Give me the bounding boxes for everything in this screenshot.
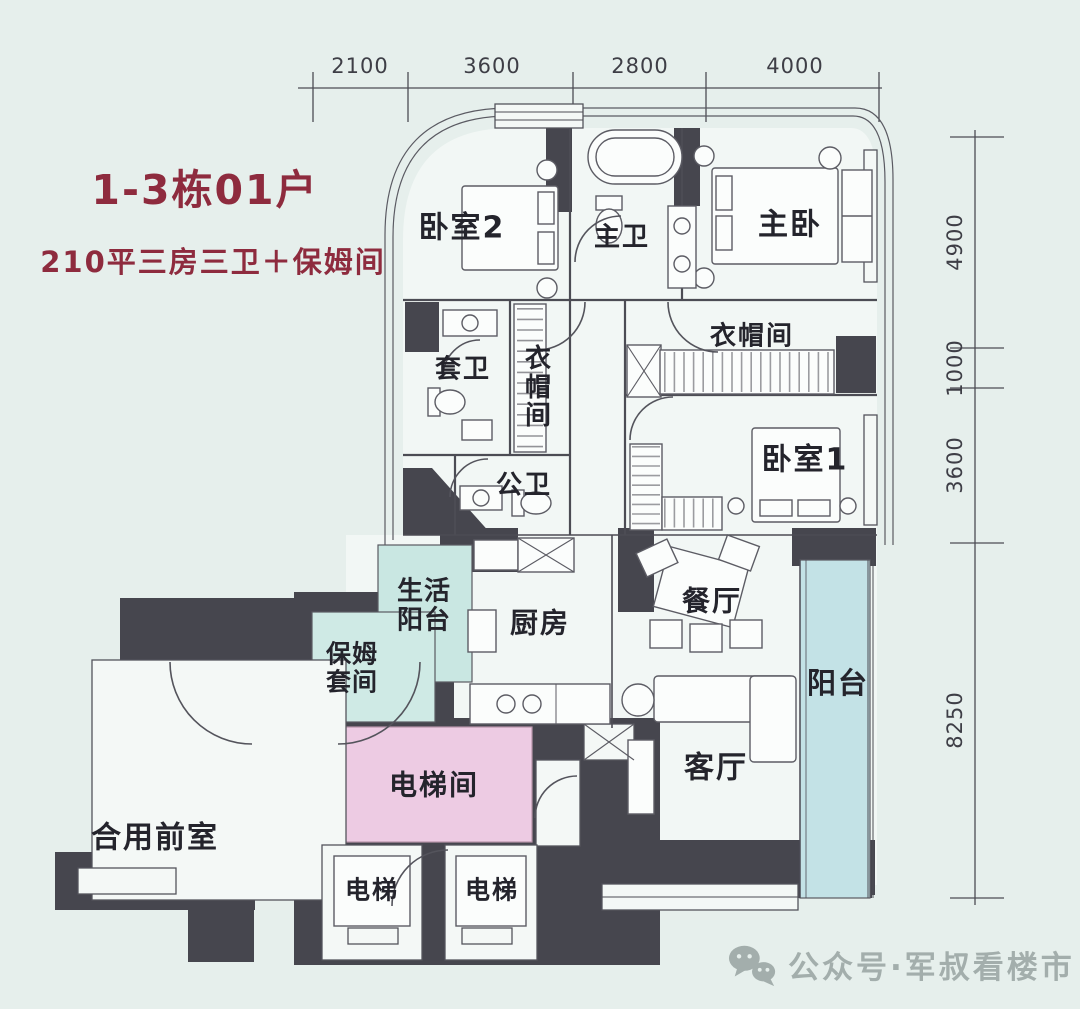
dim-right-4: 8250 xyxy=(943,691,967,748)
room-label-service-balcony: 生活阳台 xyxy=(393,577,454,634)
page-subtitle: 210平三房三卫＋保姆间 xyxy=(40,239,386,281)
shared-front-room-area xyxy=(92,660,346,900)
dim-top-2: 3600 xyxy=(463,54,520,78)
room-label-ensuite-bath: 套卫 xyxy=(435,356,491,385)
room-label-kitchen: 厨房 xyxy=(510,609,570,640)
room-label-public-bath: 公卫 xyxy=(496,472,552,501)
dim-top-1: 2100 xyxy=(331,54,388,78)
room-label-balcony: 阳台 xyxy=(807,668,869,700)
room-label-elevator-left: 电梯 xyxy=(345,876,399,904)
page-title: 1-3栋01户 xyxy=(91,156,318,216)
room-label-closet-right: 衣帽间 xyxy=(710,323,794,352)
dim-right-1: 4900 xyxy=(943,213,967,270)
room-label-dining: 餐厅 xyxy=(682,587,742,618)
balcony-area xyxy=(800,560,870,898)
room-label-nanny-suite: 保姆套间 xyxy=(323,641,382,696)
watermark-text: 公众号·军叔看楼市 xyxy=(788,942,1075,987)
watermark: 公众号·军叔看楼市 xyxy=(728,942,1075,987)
room-label-closet-center: 衣帽间 xyxy=(523,345,553,431)
room-label-master-bath: 主卫 xyxy=(594,224,650,253)
floorplan-drawing xyxy=(0,0,1080,1009)
room-label-bedroom2: 卧室2 xyxy=(419,212,506,245)
dim-right-3: 3600 xyxy=(943,436,967,493)
wechat-icon xyxy=(728,943,778,987)
top-window-tab xyxy=(495,104,583,128)
master-vanity xyxy=(668,206,696,288)
dim-right-2: 1000 xyxy=(943,339,967,396)
dim-top-3: 2800 xyxy=(611,54,668,78)
closet-right-rack xyxy=(627,345,834,397)
front-window xyxy=(78,868,176,894)
floorplan-page: 1-3栋01户 210平三房三卫＋保姆间 2100 3600 2800 4000… xyxy=(0,0,1080,1009)
room-label-master-bedroom: 主卧 xyxy=(758,209,822,242)
room-label-elevator-hall: 电梯间 xyxy=(389,771,479,802)
dim-top-4: 4000 xyxy=(766,54,823,78)
room-label-living: 客厅 xyxy=(684,752,748,785)
bedroom1-window xyxy=(864,415,877,525)
room-label-shared-front-room: 合用前室 xyxy=(91,822,219,855)
bathtub xyxy=(588,130,682,184)
room-label-bedroom1: 卧室1 xyxy=(762,444,849,477)
room-label-elevator-right: 电梯 xyxy=(465,876,519,904)
